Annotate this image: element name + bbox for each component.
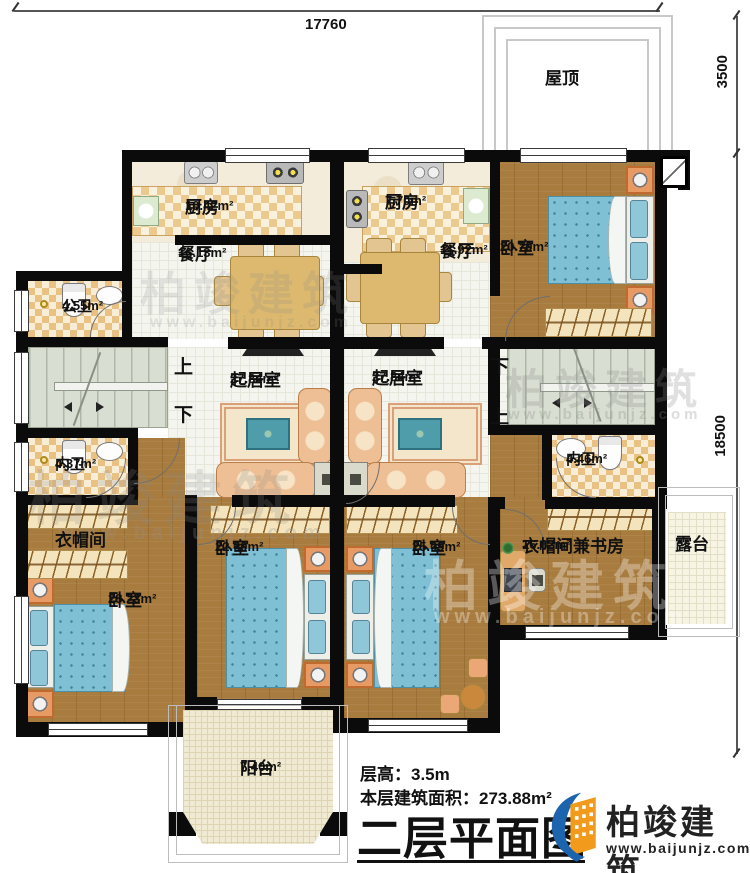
- dining-table-right: [360, 252, 440, 324]
- window: [14, 352, 29, 424]
- hook-icon: [40, 456, 48, 464]
- wall: [655, 349, 667, 497]
- window: [14, 596, 29, 684]
- dining-table-left: [230, 256, 320, 330]
- staircase-left-handrail: [54, 382, 168, 391]
- dim-tick: [733, 748, 741, 758]
- wall: [344, 337, 444, 349]
- stairs-right-down-label: 下: [490, 352, 509, 379]
- dim-label-right-main: 18500: [712, 415, 729, 457]
- wall: [175, 235, 330, 245]
- kitchen-right-stove-icon: [346, 190, 368, 228]
- stairs-left-up-label: 上: [174, 352, 193, 379]
- window: [14, 442, 29, 492]
- brand-name: 柏竣建筑: [606, 795, 750, 873]
- dim-line-top: [14, 10, 660, 12]
- pillow: [30, 610, 48, 646]
- stairs-right-up-label: 上: [490, 402, 509, 429]
- staircase-right-handrail: [540, 383, 655, 392]
- corner-table: [460, 684, 486, 710]
- corner-chair: [440, 694, 460, 714]
- shaft-icon: [660, 156, 688, 188]
- pillow: [630, 242, 648, 280]
- floor-plan-canvas: 17760 3500 18500 屋顶: [0, 0, 750, 873]
- bed-sheet: [608, 196, 626, 284]
- staircase-right-arrow: [552, 398, 560, 408]
- roof-outline-inner: [506, 39, 649, 155]
- wall: [16, 495, 132, 505]
- coffee-table-left: [246, 418, 290, 450]
- window: [520, 148, 627, 163]
- terrace-floor: [668, 512, 726, 624]
- nightstand: [26, 576, 54, 604]
- pillow: [630, 200, 648, 238]
- floor-height-text: 层高：3.5m: [360, 760, 450, 785]
- pillow: [308, 580, 326, 614]
- wall: [16, 337, 168, 347]
- sofa-right-side: [348, 388, 382, 464]
- study-chair: [528, 568, 546, 592]
- wardrobe-band: [26, 550, 128, 579]
- wall: [16, 428, 138, 438]
- study-monitor: [504, 568, 522, 592]
- window: [225, 148, 310, 163]
- wall: [542, 430, 552, 500]
- wall: [338, 264, 382, 274]
- wall: [232, 495, 344, 507]
- nightstand: [346, 546, 374, 572]
- nightstand: [626, 166, 654, 194]
- sofa-right-bottom: [366, 462, 466, 498]
- stairs-left-down-label: 下: [174, 400, 193, 427]
- pillow: [352, 620, 370, 654]
- brand-logo: [545, 788, 603, 866]
- wardrobe-top-right: [545, 308, 652, 337]
- kitchen-right-sink-counter: [463, 188, 489, 224]
- bed-bottom-mid: [226, 548, 290, 688]
- coffee-table-right: [398, 418, 442, 450]
- dim-label-top: 17760: [305, 16, 347, 33]
- window: [368, 719, 468, 732]
- bed-sheet: [112, 604, 130, 692]
- wall: [16, 271, 122, 281]
- staircase-left-arrow: [96, 402, 104, 412]
- brand-logo-icon: [545, 788, 603, 866]
- hook-icon: [636, 456, 644, 464]
- nightstand: [346, 662, 374, 688]
- hook-icon: [40, 300, 48, 308]
- kitchen-left-sink-counter: [133, 196, 159, 226]
- wall: [490, 150, 500, 296]
- pillow: [352, 580, 370, 614]
- wardrobe-band: [346, 505, 458, 534]
- dim-line-right-upper: [736, 16, 738, 154]
- kitchen-left-stove-icon: [266, 161, 304, 184]
- window: [525, 626, 629, 639]
- sofa-left-side: [298, 388, 332, 464]
- nightstand: [304, 662, 332, 688]
- brand-url: www.baijunjz.com: [606, 840, 750, 856]
- kitchen-right-sink-icon: [408, 160, 444, 185]
- window: [48, 723, 148, 736]
- wall: [545, 497, 667, 509]
- dim-line-right-main: [736, 154, 738, 754]
- wall: [330, 150, 344, 733]
- wall: [228, 337, 330, 349]
- staircase-left-arrow: [64, 402, 72, 412]
- kitchen-left-sink-icon: [184, 161, 218, 184]
- staircase-right-arrow: [584, 398, 592, 408]
- bed-sheet: [374, 548, 392, 688]
- corner-chair: [468, 658, 488, 678]
- nightstand: [26, 690, 54, 718]
- sofa-left-bottom: [216, 462, 316, 498]
- dim-label-right-upper: 3500: [714, 55, 731, 88]
- wall: [488, 425, 667, 435]
- nightstand: [304, 546, 332, 572]
- bed-sheet: [286, 548, 304, 688]
- window: [368, 148, 465, 163]
- pillow: [308, 620, 326, 654]
- window: [14, 290, 29, 332]
- pillow: [30, 650, 48, 686]
